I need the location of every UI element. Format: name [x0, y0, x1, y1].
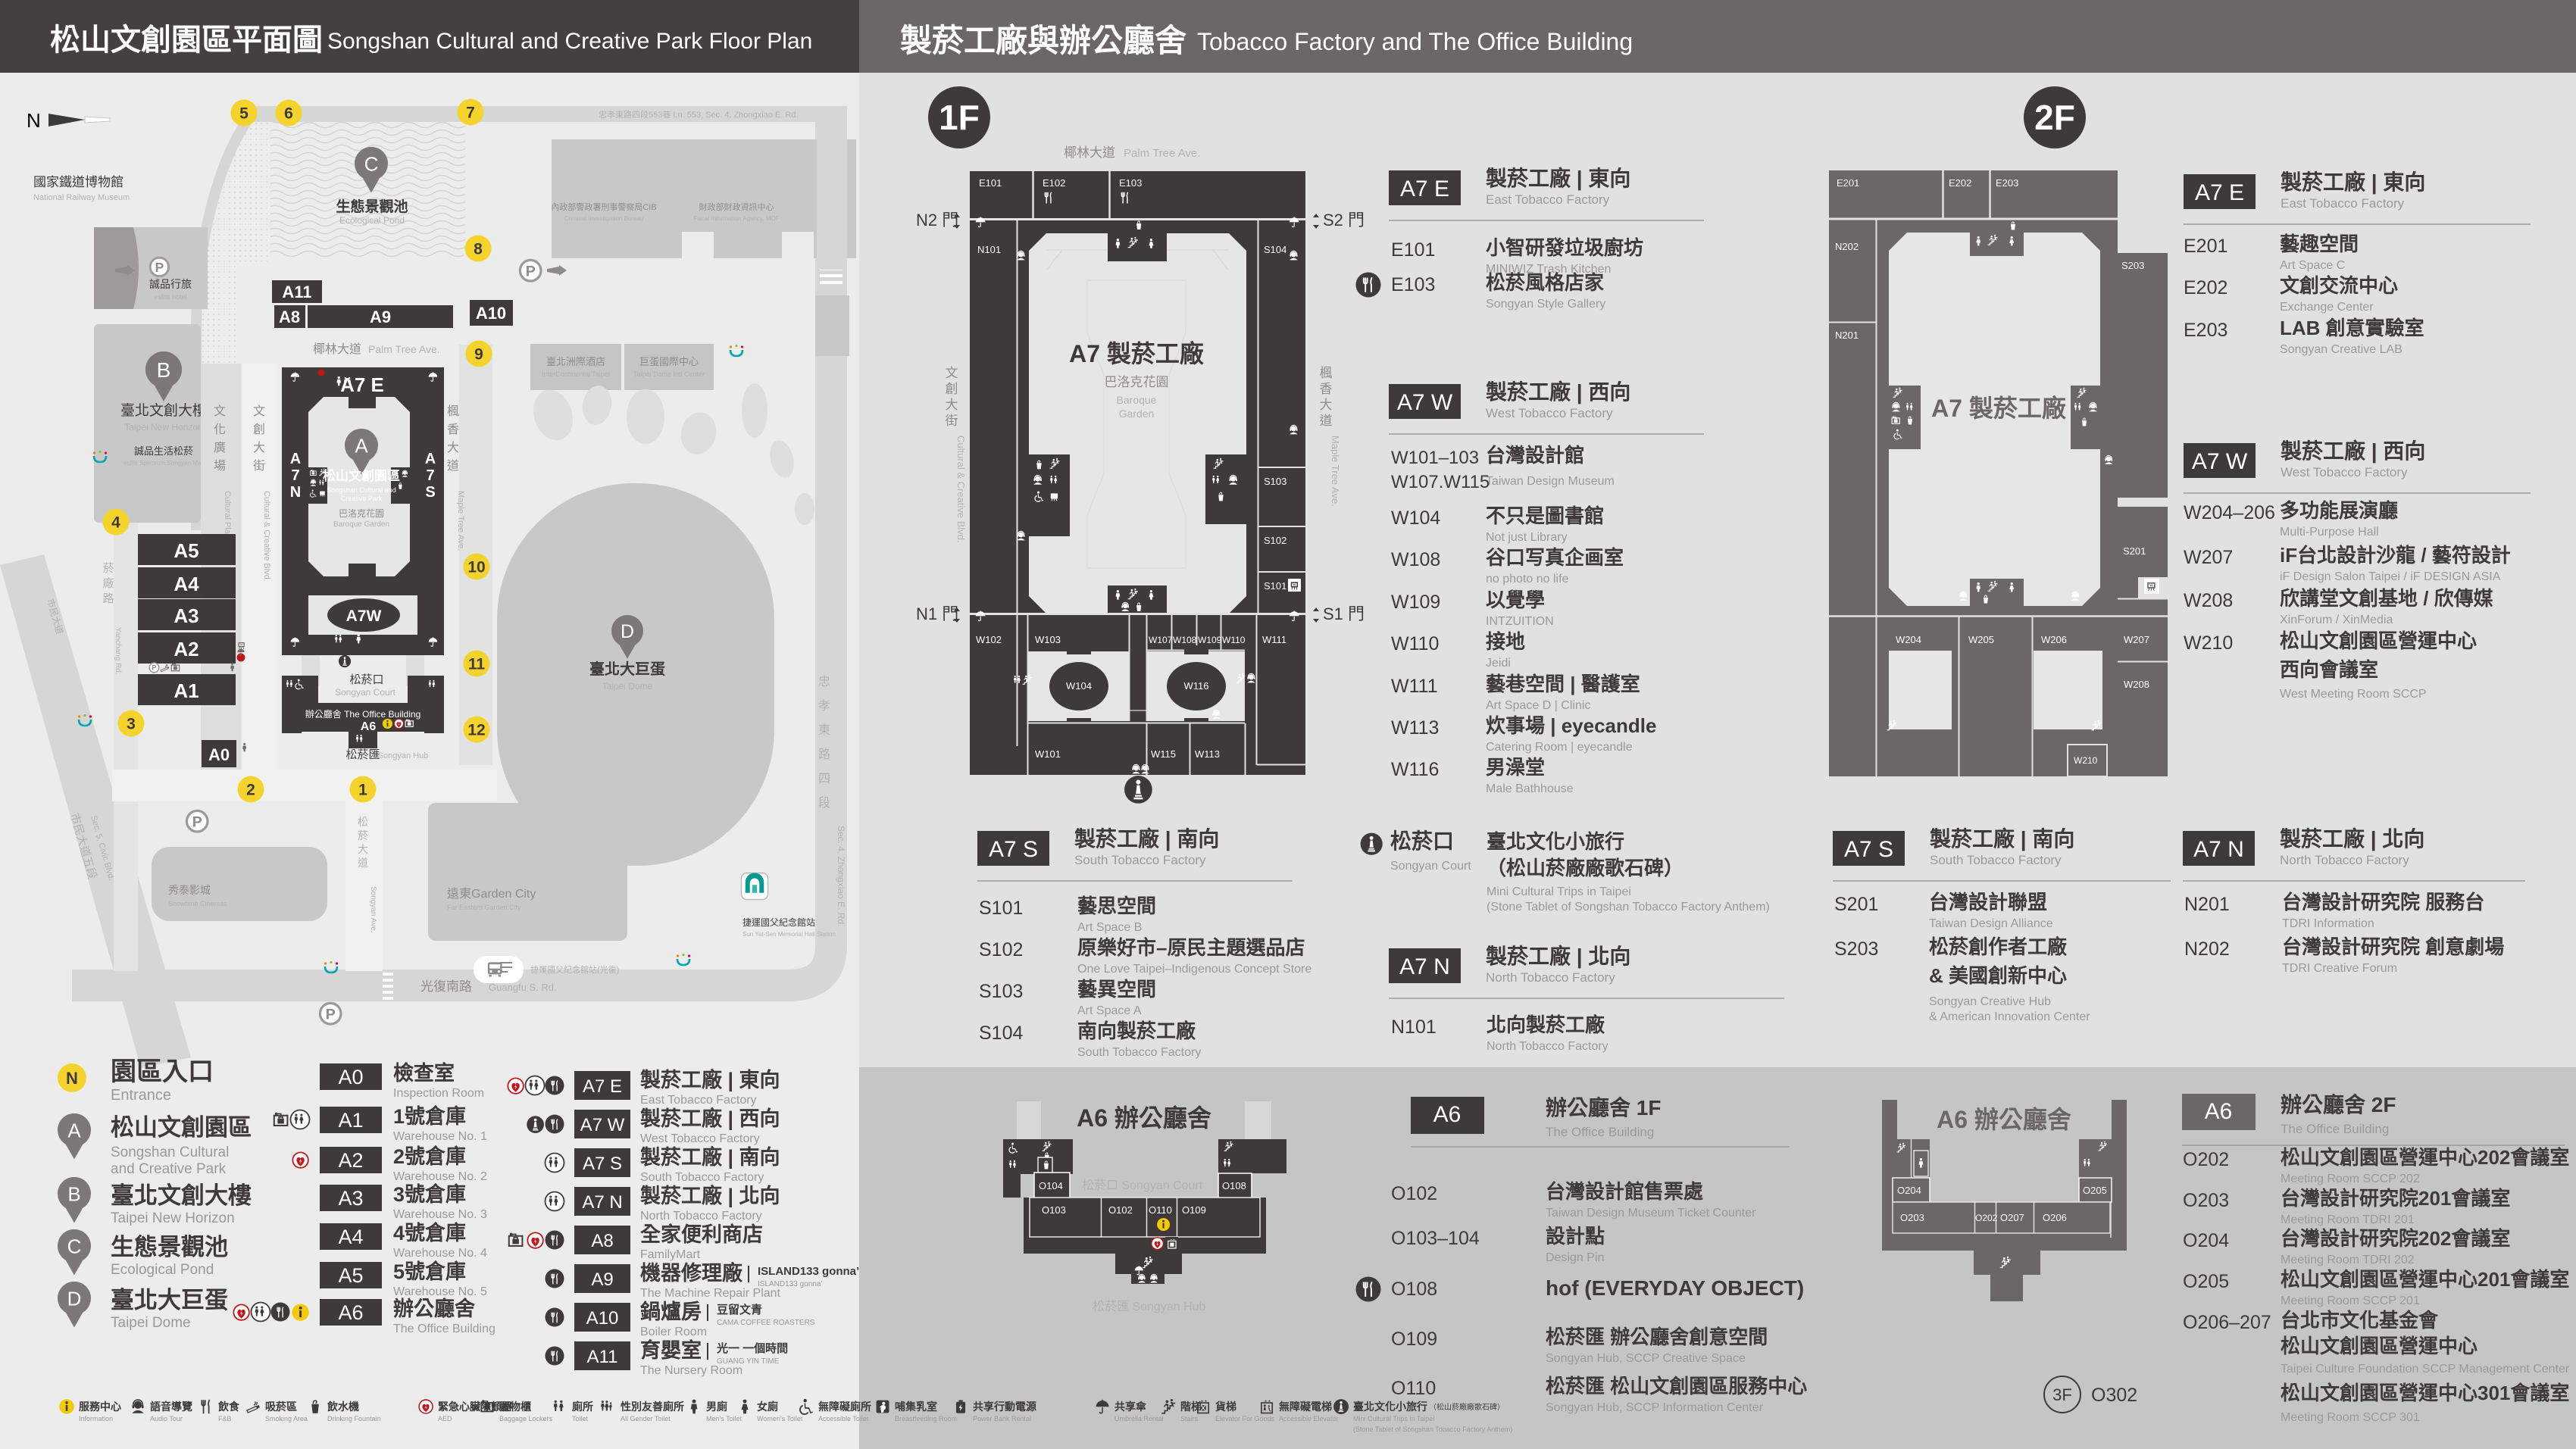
svg-text:Songshan Cultural: Songshan Cultural: [111, 1145, 229, 1160]
svg-text:W204–206: W204–206: [2184, 502, 2275, 523]
svg-text:A3: A3: [174, 604, 199, 627]
svg-text:S203: S203: [2121, 260, 2144, 271]
svg-text:東: 東: [818, 723, 830, 737]
svg-text:INTZUITION: INTZUITION: [1486, 615, 1554, 628]
svg-text:S201: S201: [1834, 894, 1878, 915]
svg-text:A7 W: A7 W: [2192, 449, 2248, 474]
svg-text:製菸工廠 | 北向: 製菸工廠 | 北向: [640, 1184, 780, 1207]
svg-text:臺北文創大樓: 臺北文創大樓: [120, 402, 207, 419]
svg-text:8: 8: [474, 241, 483, 258]
svg-text:Meeting Room SCCP 202: Meeting Room SCCP 202: [2281, 1173, 2420, 1185]
svg-text:Umbrella Rental: Umbrella Rental: [1114, 1415, 1164, 1422]
svg-text:Criminal Investigation Bureau: Criminal Investigation Bureau: [564, 215, 644, 222]
svg-text:Art Space D | Clinic: Art Space D | Clinic: [1486, 699, 1590, 712]
svg-text:Yanchang Rd.: Yanchang Rd.: [114, 627, 122, 675]
svg-text:街: 街: [946, 414, 958, 428]
svg-text:臺北文創大樓: 臺北文創大樓: [111, 1182, 252, 1209]
svg-text:服務中心: 服務中心: [79, 1401, 121, 1413]
svg-text:TDRI Information: TDRI Information: [2282, 917, 2374, 930]
svg-text:A1: A1: [174, 679, 199, 702]
svg-text:W104: W104: [1066, 680, 1092, 692]
svg-text:捷運國父紀念館站(光復): 捷運國父紀念館站(光復): [530, 964, 619, 975]
svg-text:Drinking Fountain: Drinking Fountain: [327, 1415, 381, 1422]
svg-text:N2 門: N2 門: [916, 211, 958, 230]
svg-text:6: 6: [284, 105, 293, 123]
svg-text:N202: N202: [1835, 241, 1859, 252]
svg-text:誠品生活松菸: 誠品生活松菸: [134, 445, 193, 457]
svg-text:製菸工廠 | 西向: 製菸工廠 | 西向: [1486, 379, 1630, 404]
svg-text:財政部財政資訊中心: 財政部財政資訊中心: [699, 201, 774, 212]
svg-text:S104: S104: [1264, 244, 1286, 255]
svg-text:西向會議室: 西向會議室: [2280, 658, 2378, 681]
svg-text:W210: W210: [2184, 632, 2233, 654]
svg-text:製菸工廠 | 南向: 製菸工廠 | 南向: [640, 1145, 780, 1169]
svg-text:10: 10: [467, 559, 485, 576]
svg-text:Art Space B: Art Space B: [1077, 921, 1142, 934]
svg-text:男澡堂: 男澡堂: [1486, 756, 1545, 779]
svg-text:11: 11: [468, 656, 486, 673]
svg-text:松山文創園區營運中心301會議室: 松山文創園區營運中心301會議室: [2281, 1382, 2569, 1404]
svg-text:菸: 菸: [358, 829, 368, 842]
svg-text:3: 3: [127, 716, 136, 733]
svg-text:Smoking Area: Smoking Area: [265, 1415, 308, 1422]
svg-text:A7 S: A7 S: [1844, 837, 1893, 862]
svg-text:無障礙電梯: 無障礙電梯: [1279, 1401, 1332, 1413]
svg-text:以覺學: 以覺學: [1486, 589, 1545, 611]
svg-text:LAB 創意實驗室: LAB 創意實驗室: [2280, 317, 2424, 339]
svg-text:Toilet: Toilet: [572, 1415, 589, 1422]
svg-text:West Meeting Room SCCP: West Meeting Room SCCP: [2280, 688, 2427, 701]
svg-text:West Tobacco Factory: West Tobacco Factory: [2281, 465, 2408, 479]
svg-text:A9: A9: [370, 308, 391, 326]
svg-text:Maple Tree Ave.: Maple Tree Ave.: [1330, 436, 1341, 507]
svg-text:文: 文: [214, 404, 226, 418]
svg-text:Baroque: Baroque: [1117, 394, 1157, 406]
svg-text:Baroque Garden: Baroque Garden: [333, 520, 389, 529]
svg-text:O110: O110: [1149, 1204, 1172, 1216]
svg-text:Sun Yat-Sen Memorial Hall Stat: Sun Yat-Sen Memorial Hall Station: [742, 931, 836, 938]
svg-text:Jeidi: Jeidi: [1486, 657, 1511, 670]
svg-text:A2: A2: [174, 638, 199, 660]
svg-text:Songyan Creative LAB: Songyan Creative LAB: [2280, 343, 2402, 356]
svg-text:大: 大: [358, 843, 368, 855]
svg-text:A11: A11: [587, 1347, 618, 1367]
svg-text:North Tobacco Factory: North Tobacco Factory: [640, 1210, 762, 1223]
svg-text:松菸匯: 松菸匯: [345, 748, 380, 761]
svg-text:道: 道: [358, 857, 368, 869]
svg-text:松山文創園區平面圖: 松山文創園區平面圖: [50, 23, 323, 57]
svg-text:E202: E202: [1949, 177, 1971, 189]
svg-text:台灣設計研究院201會議室: 台灣設計研究院201會議室: [2281, 1187, 2510, 1210]
svg-text:谷口写真企画室: 谷口写真企画室: [1486, 546, 1624, 569]
svg-text:Warehouse No. 4: Warehouse No. 4: [393, 1247, 487, 1260]
svg-text:藝思空間: 藝思空間: [1077, 895, 1156, 917]
svg-text:E201: E201: [1837, 177, 1859, 189]
svg-text:辦公廳舍: 辦公廳舍: [393, 1297, 476, 1320]
svg-text:飲水機: 飲水機: [327, 1401, 359, 1413]
svg-text:N201: N201: [1835, 329, 1859, 341]
svg-text:A: A: [355, 434, 368, 457]
svg-text:Boiler Room: Boiler Room: [640, 1326, 707, 1338]
svg-text:Meeting Room SCCP 301: Meeting Room SCCP 301: [2281, 1411, 2420, 1424]
svg-text:園區入口: 園區入口: [111, 1057, 214, 1086]
svg-text:Warehouse No. 3: Warehouse No. 3: [393, 1208, 487, 1221]
svg-text:W208: W208: [2184, 590, 2233, 611]
svg-text:ISLAND133 gonna’: ISLAND133 gonna’: [758, 1280, 823, 1288]
svg-text:W205: W205: [1968, 634, 1994, 645]
svg-text:W204: W204: [1896, 634, 1921, 645]
svg-text:National Railway Museum: National Railway Museum: [33, 193, 130, 202]
svg-text:秀泰影城: 秀泰影城: [168, 884, 211, 896]
svg-text:W110: W110: [1222, 635, 1246, 645]
svg-text:Women's Toilet: Women's Toilet: [757, 1415, 803, 1422]
svg-text:遠東Garden City: 遠東Garden City: [447, 887, 536, 901]
svg-text:A4: A4: [338, 1226, 363, 1248]
svg-text:Taipei Dome: Taipei Dome: [111, 1315, 191, 1331]
svg-text:共享傘: 共享傘: [1114, 1401, 1147, 1413]
svg-text:W101–103: W101–103: [1391, 448, 1479, 468]
svg-text:道: 道: [447, 459, 459, 473]
svg-text:臺北文化小旅行: 臺北文化小旅行: [1487, 830, 1624, 853]
svg-text:O102: O102: [1108, 1204, 1133, 1216]
svg-text:W109: W109: [1198, 635, 1222, 645]
svg-text:C: C: [67, 1235, 82, 1257]
svg-text:XinForum / XinMedia: XinForum / XinMedia: [2280, 614, 2393, 626]
svg-text:Design Pin: Design Pin: [1546, 1251, 1604, 1264]
svg-text:W101: W101: [1035, 748, 1061, 760]
svg-text:台灣設計研究院 創意劇場: 台灣設計研究院 創意劇場: [2282, 935, 2504, 958]
svg-text:四: 四: [818, 773, 830, 785]
svg-text:A4: A4: [174, 573, 199, 595]
svg-text:置物櫃: 置物櫃: [499, 1401, 531, 1413]
svg-text:創: 創: [946, 382, 958, 396]
svg-text:A9: A9: [591, 1269, 613, 1290]
svg-text:W111: W111: [1262, 634, 1286, 645]
svg-text:廁所: 廁所: [572, 1401, 593, 1413]
svg-text:道: 道: [1320, 414, 1333, 428]
svg-text:Entrance: Entrance: [111, 1087, 171, 1104]
svg-text:A7 S: A7 S: [989, 837, 1038, 862]
svg-text:W107.W115: W107.W115: [1391, 472, 1490, 492]
svg-text:無障礙廁所: 無障礙廁所: [818, 1401, 871, 1413]
svg-text:Tobacco Factory and The Office: Tobacco Factory and The Office Building: [1197, 28, 1633, 55]
svg-text:內政部警政署刑事警察局CIB: 內政部警政署刑事警察局CIB: [551, 201, 656, 212]
svg-text:南向製菸工廠: 南向製菸工廠: [1077, 1020, 1196, 1042]
svg-text:A1: A1: [338, 1109, 363, 1132]
svg-text:台灣設計研究院202會議室: 台灣設計研究院202會議室: [2281, 1227, 2510, 1250]
svg-text:ISLAND133 gonna’: ISLAND133 gonna’: [758, 1265, 859, 1278]
svg-text:松菸風格店家: 松菸風格店家: [1486, 271, 1604, 294]
svg-text:製菸工廠與辦公廳舍: 製菸工廠與辦公廳舍: [900, 23, 1186, 58]
svg-text:路: 路: [102, 592, 114, 605]
svg-text:O206: O206: [2043, 1212, 2067, 1223]
svg-text:忠: 忠: [818, 675, 830, 689]
svg-text:台北市文化基金會: 台北市文化基金會: [2281, 1309, 2439, 1332]
svg-text:S103: S103: [979, 981, 1023, 1002]
svg-text:Warehouse No. 2: Warehouse No. 2: [393, 1170, 487, 1183]
svg-text:Mini Cultural Trips in Taipei: Mini Cultural Trips in Taipei: [1487, 885, 1631, 898]
svg-text:Cultural & Creative Blvd.: Cultural & Creative Blvd.: [955, 436, 967, 543]
svg-text:E202: E202: [2184, 277, 2227, 298]
svg-text:A3: A3: [338, 1187, 363, 1210]
svg-text:Accessible Toilet: Accessible Toilet: [818, 1415, 869, 1422]
svg-text:& American Innovation Center: & American Innovation Center: [1929, 1010, 2090, 1023]
svg-text:B: B: [67, 1182, 80, 1205]
svg-text:W113: W113: [1195, 748, 1220, 760]
svg-text:欣講堂文創基地 / 欣傳媒: 欣講堂文創基地 / 欣傳媒: [2280, 587, 2493, 610]
svg-text:The Machine Repair Plant: The Machine Repair Plant: [640, 1287, 781, 1300]
svg-text:誠品行旅: 誠品行旅: [149, 278, 192, 290]
svg-text:1F: 1F: [939, 98, 980, 137]
svg-text:松菸口: 松菸口: [1390, 829, 1454, 853]
svg-text:Songyan Style Gallery: Songyan Style Gallery: [1486, 298, 1605, 311]
svg-text:廣: 廣: [214, 441, 226, 454]
svg-text:文: 文: [946, 366, 958, 380]
svg-text:大: 大: [946, 398, 958, 412]
svg-text:East Tobacco Factory: East Tobacco Factory: [2281, 196, 2405, 211]
svg-text:Guangfu S. Rd.: Guangfu S. Rd.: [489, 982, 557, 993]
svg-text:CAMA COFFEE ROASTERS: CAMA COFFEE ROASTERS: [717, 1319, 815, 1327]
svg-text:InterContinental Taipei: InterContinental Taipei: [542, 370, 609, 378]
svg-text:A5: A5: [338, 1264, 363, 1287]
svg-text:Taiwan Design Museum: Taiwan Design Museum: [1486, 475, 1615, 488]
svg-text:A10: A10: [586, 1308, 619, 1329]
svg-text:松山文創園區營運中心: 松山文創園區營運中心: [2281, 1335, 2478, 1357]
svg-text:Audio Tour: Audio Tour: [150, 1415, 183, 1422]
svg-text:1號倉庫: 1號倉庫: [393, 1104, 466, 1128]
svg-text:Inspection Room: Inspection Room: [393, 1087, 484, 1100]
svg-text:Songshan Cultural and: Songshan Cultural and: [327, 486, 396, 494]
svg-text:原樂好市–原民主題選品店: 原樂好市–原民主題選品店: [1077, 936, 1305, 959]
svg-text:A: A: [290, 451, 301, 467]
svg-text:W103: W103: [1035, 634, 1061, 645]
svg-text:楓: 楓: [1320, 366, 1333, 380]
svg-text:East Tobacco Factory: East Tobacco Factory: [640, 1094, 757, 1107]
svg-text:The Office Building: The Office Building: [2281, 1122, 2389, 1136]
svg-text:臺北大巨蛋: 臺北大巨蛋: [111, 1287, 228, 1313]
svg-text:Breastfeeding Room: Breastfeeding Room: [895, 1415, 957, 1422]
svg-text:製菸工廠 | 東向: 製菸工廠 | 東向: [2281, 170, 2425, 194]
svg-text:Maple Tree Ave.: Maple Tree Ave.: [456, 491, 465, 551]
svg-text:O103: O103: [1042, 1204, 1066, 1216]
svg-text:O109: O109: [1182, 1204, 1206, 1216]
svg-text:E101: E101: [1391, 239, 1435, 261]
svg-text:松菸匯 Songyan Hub: 松菸匯 Songyan Hub: [1093, 1300, 1206, 1313]
svg-text:檢查室: 檢查室: [393, 1061, 455, 1085]
svg-text:West Tobacco Factory: West Tobacco Factory: [640, 1132, 760, 1145]
svg-text:Creative Park: Creative Park: [341, 495, 383, 502]
svg-text:A7 E: A7 E: [340, 373, 384, 396]
svg-text:女廁: 女廁: [757, 1401, 778, 1413]
svg-text:W102: W102: [976, 634, 1002, 645]
svg-text:飲食: 飲食: [217, 1401, 240, 1413]
svg-text:A6: A6: [338, 1301, 363, 1324]
svg-text:S101: S101: [979, 898, 1023, 919]
svg-text:O103–104: O103–104: [1391, 1228, 1480, 1249]
svg-text:W110: W110: [1391, 633, 1439, 654]
svg-text:The Nursery Room: The Nursery Room: [640, 1364, 742, 1377]
svg-text:South Tobacco Factory: South Tobacco Factory: [1930, 853, 2062, 867]
svg-text:O206–207: O206–207: [2183, 1312, 2271, 1333]
svg-text:W108: W108: [1391, 549, 1440, 570]
svg-text:S1 門: S1 門: [1323, 604, 1365, 623]
svg-text:Ecological Pond: Ecological Pond: [111, 1262, 214, 1278]
svg-text:4號倉庫: 4號倉庫: [393, 1221, 466, 1244]
svg-text:N1 門: N1 門: [916, 604, 958, 623]
svg-text:S102: S102: [979, 939, 1023, 960]
svg-text:Cultural & Creative Blvd.: Cultural & Creative Blvd.: [262, 491, 271, 582]
svg-text:O104: O104: [1039, 1180, 1063, 1191]
svg-text:Sec. 4, Zhongxiao E. Rd.: Sec. 4, Zhongxiao E. Rd.: [836, 826, 846, 926]
svg-text:Art Space C: Art Space C: [2280, 259, 2345, 272]
svg-text:A8: A8: [591, 1231, 613, 1251]
svg-text:1: 1: [358, 782, 367, 799]
svg-text:South Tobacco Factory: South Tobacco Factory: [1074, 853, 1206, 867]
svg-text:& 美國創新中心: & 美國創新中心: [1929, 964, 2067, 987]
svg-text:hof (EVERYDAY OBJECT): hof (EVERYDAY OBJECT): [1546, 1276, 1804, 1300]
svg-text:2: 2: [246, 782, 255, 799]
svg-text:S102: S102: [1264, 535, 1286, 546]
svg-text:創: 創: [253, 423, 265, 436]
svg-text:W206: W206: [2041, 634, 2067, 645]
svg-text:男廁: 男廁: [706, 1401, 727, 1413]
svg-text:Catering Room | eyecandle: Catering Room | eyecandle: [1486, 741, 1633, 754]
svg-text:O203: O203: [1900, 1212, 1924, 1223]
svg-text:Fiscal Information Agency, MOF: Fiscal Information Agency, MOF: [693, 215, 779, 222]
svg-text:街: 街: [253, 459, 265, 473]
svg-text:Showtime Cinemas: Showtime Cinemas: [168, 900, 227, 907]
svg-text:O108: O108: [1391, 1279, 1437, 1300]
svg-text:廠: 廠: [102, 576, 114, 590]
svg-text:E201: E201: [2184, 236, 2227, 257]
svg-text:藝異空間: 藝異空間: [1077, 978, 1156, 1001]
svg-text:S101: S101: [1264, 580, 1286, 592]
svg-text:E203: E203: [1996, 177, 2018, 189]
svg-text:Meeting Room SCCP 201: Meeting Room SCCP 201: [2281, 1294, 2420, 1307]
svg-text:O202: O202: [1975, 1213, 1998, 1223]
svg-text:S103: S103: [1264, 476, 1286, 487]
svg-text:Information: Information: [79, 1415, 113, 1422]
svg-text:共享行動電源: 共享行動電源: [973, 1401, 1036, 1413]
svg-text:A10: A10: [476, 304, 506, 323]
svg-text:巨蛋國際中心: 巨蛋國際中心: [639, 356, 699, 367]
svg-text:臺北大巨蛋: 臺北大巨蛋: [589, 660, 665, 678]
svg-text:W210: W210: [2074, 755, 2098, 766]
svg-text:eslite Spectrum Songyan Mall: eslite Spectrum Songyan Mall: [123, 460, 204, 467]
svg-text:Taipei Dome: Taipei Dome: [602, 681, 653, 692]
svg-text:Warehouse No. 1: Warehouse No. 1: [393, 1130, 487, 1143]
svg-text:W207: W207: [2184, 547, 2233, 568]
svg-text:Not just Library: Not just Library: [1486, 531, 1568, 544]
svg-text:辦公廳舍 2F: 辦公廳舍 2F: [2281, 1092, 2396, 1116]
svg-text:大: 大: [1320, 398, 1333, 412]
svg-text:The Office Building: The Office Building: [393, 1323, 496, 1335]
svg-text:A6: A6: [361, 720, 377, 733]
svg-text:W208: W208: [2124, 679, 2149, 690]
svg-text:文創交流中心: 文創交流中心: [2280, 274, 2398, 297]
svg-text:The Office Building: The Office Building: [1546, 1125, 1654, 1139]
svg-text:孝: 孝: [818, 699, 830, 713]
svg-text:A6: A6: [1433, 1102, 1462, 1127]
svg-text:A7 製菸工廠: A7 製菸工廠: [1931, 395, 2066, 422]
svg-text:AED: AED: [438, 1415, 452, 1422]
svg-text:O205: O205: [2083, 1185, 2107, 1196]
svg-text:台灣設計聯盟: 台灣設計聯盟: [1929, 891, 2047, 913]
svg-text:W113: W113: [1391, 717, 1439, 739]
svg-text:Songyan Court: Songyan Court: [335, 687, 396, 698]
svg-text:松: 松: [358, 816, 368, 828]
svg-text:E203: E203: [2184, 320, 2227, 341]
svg-text:台灣設計研究院 服務台: 台灣設計研究院 服務台: [2282, 891, 2484, 913]
svg-text:A7 W: A7 W: [1397, 390, 1453, 415]
svg-text:2F: 2F: [2034, 98, 2075, 137]
svg-text:A0: A0: [338, 1066, 363, 1088]
svg-text:North Tobacco Factory: North Tobacco Factory: [1486, 970, 1615, 985]
svg-text:S2 門: S2 門: [1323, 211, 1365, 230]
svg-text:Taipei New Horizon: Taipei New Horizon: [124, 422, 202, 433]
svg-text:巴洛克花園: 巴洛克花園: [339, 507, 384, 519]
svg-text:Warehouse No. 5: Warehouse No. 5: [393, 1285, 487, 1298]
svg-text:Palm Tree Ave.: Palm Tree Ave.: [1124, 147, 1200, 160]
svg-text:O202: O202: [2183, 1149, 2229, 1170]
svg-text:3號倉庫: 3號倉庫: [393, 1182, 466, 1206]
svg-text:光復南路: 光復南路: [420, 979, 472, 994]
svg-text:吸菸區: 吸菸區: [265, 1401, 297, 1413]
svg-text:7: 7: [466, 105, 475, 122]
svg-text:eslite hotel: eslite hotel: [154, 293, 186, 301]
svg-text:TDRI Creative Forum: TDRI Creative Forum: [2282, 962, 2397, 975]
svg-text:S203: S203: [1834, 938, 1878, 960]
svg-text:Baggage Lockers: Baggage Lockers: [499, 1415, 553, 1422]
svg-text:North Tobacco Factory: North Tobacco Factory: [1487, 1040, 1608, 1053]
svg-text:S201: S201: [2123, 545, 2146, 557]
svg-text:O204: O204: [2183, 1230, 2229, 1251]
svg-text:路: 路: [818, 748, 830, 761]
svg-text:菸: 菸: [102, 562, 114, 575]
svg-text:Taipei New Horizon: Taipei New Horizon: [111, 1210, 235, 1226]
svg-text:（松山菸廠廠歌石碑）: （松山菸廠廠歌石碑）: [1487, 857, 1683, 879]
svg-text:O108: O108: [1222, 1180, 1246, 1191]
svg-text:A7 E: A7 E: [1400, 176, 1449, 201]
svg-text:A7 E: A7 E: [583, 1076, 622, 1097]
svg-text:Exchange Center: Exchange Center: [2280, 301, 2374, 314]
svg-text:A7 N: A7 N: [1399, 954, 1450, 979]
svg-text:辦公廳舍 The Office Building: 辦公廳舍 The Office Building: [305, 708, 421, 720]
svg-text:Men's Toilet: Men's Toilet: [706, 1415, 742, 1422]
svg-text:7: 7: [291, 467, 299, 484]
svg-text:C: C: [364, 152, 379, 175]
svg-text:鍋爐房: 鍋爐房: [640, 1300, 702, 1323]
svg-text:楓: 楓: [447, 404, 459, 418]
svg-text:炊事場 | eyecandle: 炊事場 | eyecandle: [1486, 714, 1656, 737]
svg-text:A0: A0: [208, 745, 230, 764]
svg-text:A7 N: A7 N: [2193, 837, 2244, 862]
svg-text:製菸工廠 | 西向: 製菸工廠 | 西向: [640, 1107, 780, 1130]
svg-text:A6: A6: [2205, 1099, 2233, 1124]
svg-text:O302: O302: [2091, 1385, 2137, 1406]
svg-text:A7 S: A7 S: [583, 1154, 622, 1174]
svg-text:哺集乳室: 哺集乳室: [895, 1401, 937, 1413]
svg-text:藝巷空間 | 醫護室: 藝巷空間 | 醫護室: [1486, 673, 1640, 695]
svg-text:Songyan Hub, SCCP Information: Songyan Hub, SCCP Information Center: [1546, 1401, 1764, 1414]
svg-text:FamilyMart: FamilyMart: [640, 1248, 701, 1261]
svg-text:W107: W107: [1149, 635, 1173, 645]
svg-text:松菸匯 松山文創園區服務中心: 松菸匯 松山文創園區服務中心: [1546, 1375, 1807, 1397]
svg-text:5: 5: [239, 105, 249, 123]
svg-text:性別友善廁所: 性別友善廁所: [621, 1401, 684, 1413]
svg-text:製菸工廠 | 南向: 製菸工廠 | 南向: [1930, 826, 2074, 851]
svg-text:設計點: 設計點: [1546, 1225, 1605, 1248]
